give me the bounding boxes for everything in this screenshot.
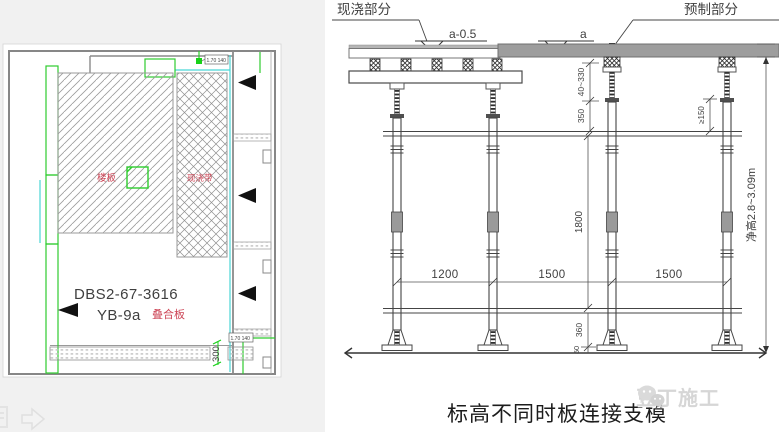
plan-label-composite: 叠合板 [152, 307, 185, 321]
dim-span-2: 1500 [538, 269, 565, 281]
plan-code-line1: DBS2-67-3616 [74, 286, 178, 303]
prop-4 [712, 57, 742, 351]
screenshot-root: 1.70 140 1.70 140 DBS2-67-3616 YB-9a 叠合板… [0, 0, 779, 432]
dim-top-offset: 350 [576, 109, 586, 123]
plan-dim-300: 300 [211, 346, 222, 362]
plan-code-line2: YB-9a [97, 307, 141, 324]
plan-label-slab: 楼板 [97, 172, 117, 184]
plan-drawing: 1.70 140 1.70 140 DBS2-67-3616 YB-9a 叠合板… [0, 40, 282, 380]
dim-clear-height: 净高2.8~3.09m [744, 168, 758, 242]
faint-icons [0, 404, 60, 432]
page-ghost-icon [0, 407, 7, 427]
plan-tag-top-text: 1.70 140 [207, 58, 227, 64]
plan-label-cast-strip: 现浇带 [187, 173, 213, 183]
elev-label-precast: 预制部分 [684, 2, 738, 17]
prop-1 [382, 89, 412, 351]
precast-slab-region [58, 73, 173, 233]
dim-base: 50 [572, 346, 581, 354]
clear-height-arrow-top [763, 57, 769, 64]
formwork-beam [349, 71, 522, 83]
dim-mid-height: 1800 [574, 210, 585, 233]
prop-2 [478, 89, 508, 351]
elev-level-precast: a [580, 27, 587, 41]
plan-tag-bottom-text: 1.70 140 [231, 336, 251, 342]
prop-3 [597, 57, 627, 351]
dim-min-embed: ≥150 [697, 106, 706, 124]
precast-slab-band [498, 44, 779, 57]
wechat-bubbles-icon [636, 384, 666, 410]
formwork-joists [370, 59, 502, 71]
dim-top-adjust: 40~330 [576, 67, 586, 96]
u-head-1 [390, 83, 404, 89]
dim-bottom-offset: 360 [574, 323, 584, 337]
plan-tag-bottom: 1.70 140 [229, 333, 253, 342]
elevation-drawing: 现浇部分 预制部分 a-0.5 a [330, 0, 779, 392]
block-arrow-right-icon [22, 409, 44, 429]
elev-label-cast: 现浇部分 [337, 2, 391, 17]
cast-topping-strip [349, 45, 500, 49]
elev-level-cast: a-0.5 [449, 27, 477, 41]
cast-slab-band [349, 49, 500, 59]
plan-wall-strip-right [228, 347, 253, 360]
ledgers [383, 132, 742, 314]
caption: 标高不同时板连接支模 [447, 398, 667, 428]
cast-strip-region [177, 73, 227, 257]
u-head-2 [486, 83, 500, 89]
dim-span-1: 1200 [431, 269, 458, 281]
plan-tag-top: 1.70 140 [202, 55, 228, 64]
plan-wall-strip-left [50, 347, 210, 360]
watermark: 豆丁施工 [636, 382, 720, 411]
plan-green-node [196, 58, 202, 64]
dim-span-3: 1500 [655, 269, 682, 281]
